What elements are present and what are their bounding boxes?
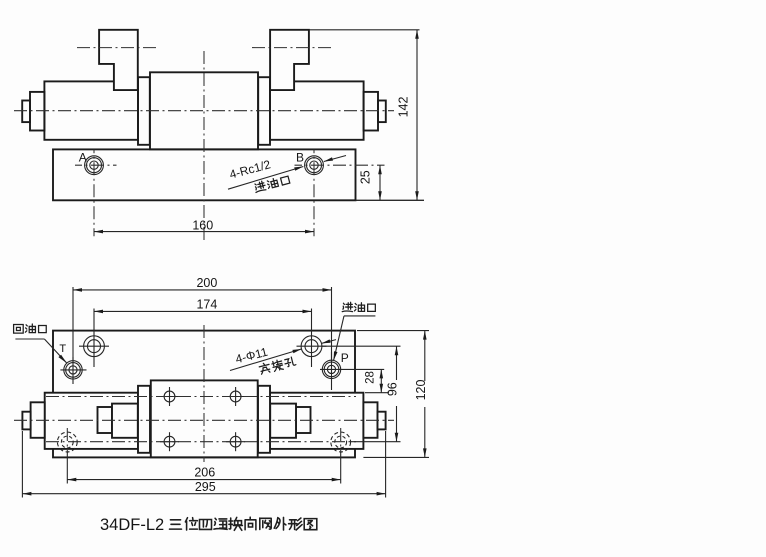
svg-text:174: 174 [196, 298, 217, 312]
svg-text:120: 120 [414, 380, 428, 401]
svg-text:28: 28 [364, 371, 376, 384]
svg-text:200: 200 [196, 276, 217, 290]
svg-text:T: T [59, 343, 66, 355]
svg-text:34DF-L2: 34DF-L2 [100, 516, 164, 534]
svg-text:A: A [79, 150, 87, 164]
svg-text:25: 25 [358, 170, 372, 184]
svg-text:P: P [341, 351, 349, 365]
svg-text:206: 206 [194, 466, 215, 480]
svg-text:295: 295 [195, 480, 216, 494]
svg-text:96: 96 [386, 382, 400, 396]
svg-text:142: 142 [396, 97, 410, 118]
svg-text:160: 160 [192, 219, 213, 233]
svg-text:B: B [296, 150, 304, 164]
